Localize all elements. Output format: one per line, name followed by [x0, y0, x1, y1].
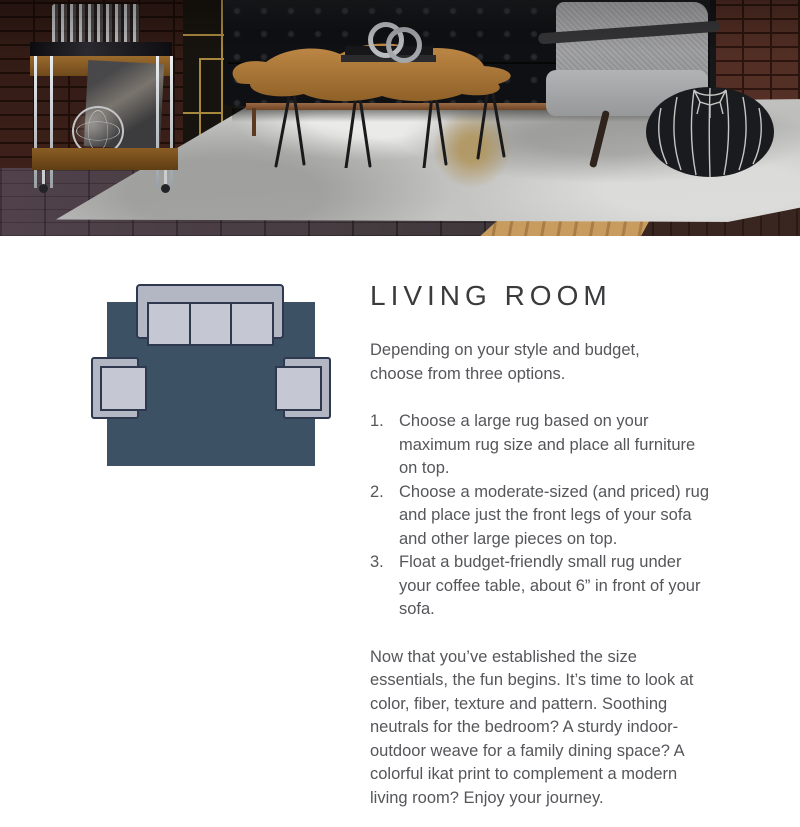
rug-layout-diagram: [85, 280, 345, 480]
cart-wheel: [161, 184, 170, 193]
diagram-sofa-cushions: [147, 302, 272, 346]
list-item: 1. Choose a large rug based on your maxi…: [370, 410, 755, 481]
armchair-leg: [589, 110, 610, 168]
list-item-text: Float a budget-friendly small rug under …: [399, 551, 713, 622]
list-item-number: 3.: [370, 551, 399, 622]
page-content: LIVING ROOM Depending on your style and …: [0, 236, 800, 800]
cart-glass-top: [30, 42, 172, 56]
list-item-text: Choose a moderate-sized (and priced) rug…: [399, 481, 713, 552]
diagram-sofa-cushion: [189, 302, 233, 346]
cart-wheel: [39, 184, 48, 193]
diagram-armchair-left-cushion: [100, 366, 147, 411]
page-title: LIVING ROOM: [370, 280, 755, 312]
list-item: 2. Choose a moderate-sized (and priced) …: [370, 481, 755, 552]
diagram-armchair-right-cushion: [275, 366, 322, 411]
intro-paragraph: Depending on your style and budget, choo…: [370, 339, 675, 386]
glassware: [52, 4, 140, 44]
list-item-number: 2.: [370, 481, 399, 552]
list-item-number: 1.: [370, 410, 399, 481]
cart-bottom-shelf: [32, 148, 178, 170]
pouf-drawing: [644, 84, 776, 178]
brass-line: [183, 112, 223, 114]
hero-photo: [0, 0, 800, 236]
list-item: 3. Float a budget-friendly small rug und…: [370, 551, 755, 622]
hairpin-legs: [276, 88, 504, 168]
rug-options-list: 1. Choose a large rug based on your maxi…: [370, 410, 755, 622]
closing-paragraph: Now that you’ve established the size ess…: [370, 646, 708, 811]
knot-sculpture: [386, 27, 422, 63]
diagram-sofa-cushion: [147, 302, 191, 346]
list-item-text: Choose a large rug based on your maximum…: [399, 410, 713, 481]
article-column: LIVING ROOM Depending on your style and …: [370, 280, 755, 827]
moroccan-leather-pouf: [644, 84, 776, 178]
diagram-sofa-cushion: [230, 302, 274, 346]
bar-cart: [22, 0, 186, 196]
